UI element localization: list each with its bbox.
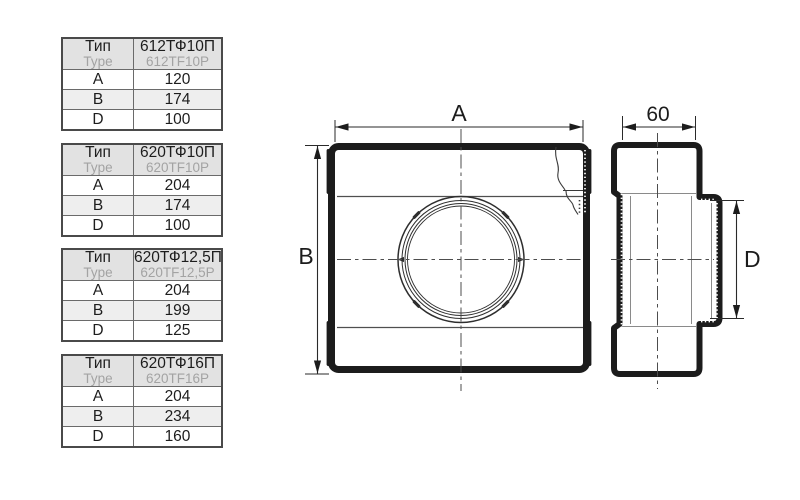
- technical-drawing: A B: [0, 0, 800, 500]
- page: { "tables": [ { "type_label_ru": "Тип", …: [0, 0, 800, 500]
- dimension-b: B: [298, 146, 329, 375]
- dimension-a: A: [335, 100, 583, 142]
- dimension-label-a: A: [451, 100, 467, 126]
- dimension-label-d: D: [744, 246, 761, 272]
- dimension-label-b: B: [298, 243, 313, 269]
- front-view-outline: [332, 147, 587, 370]
- side-view-drawing: 60 D: [611, 103, 761, 389]
- dimension-depth: 60: [623, 103, 696, 140]
- dimension-label-depth: 60: [646, 103, 669, 126]
- front-view-drawing: A B: [298, 100, 591, 391]
